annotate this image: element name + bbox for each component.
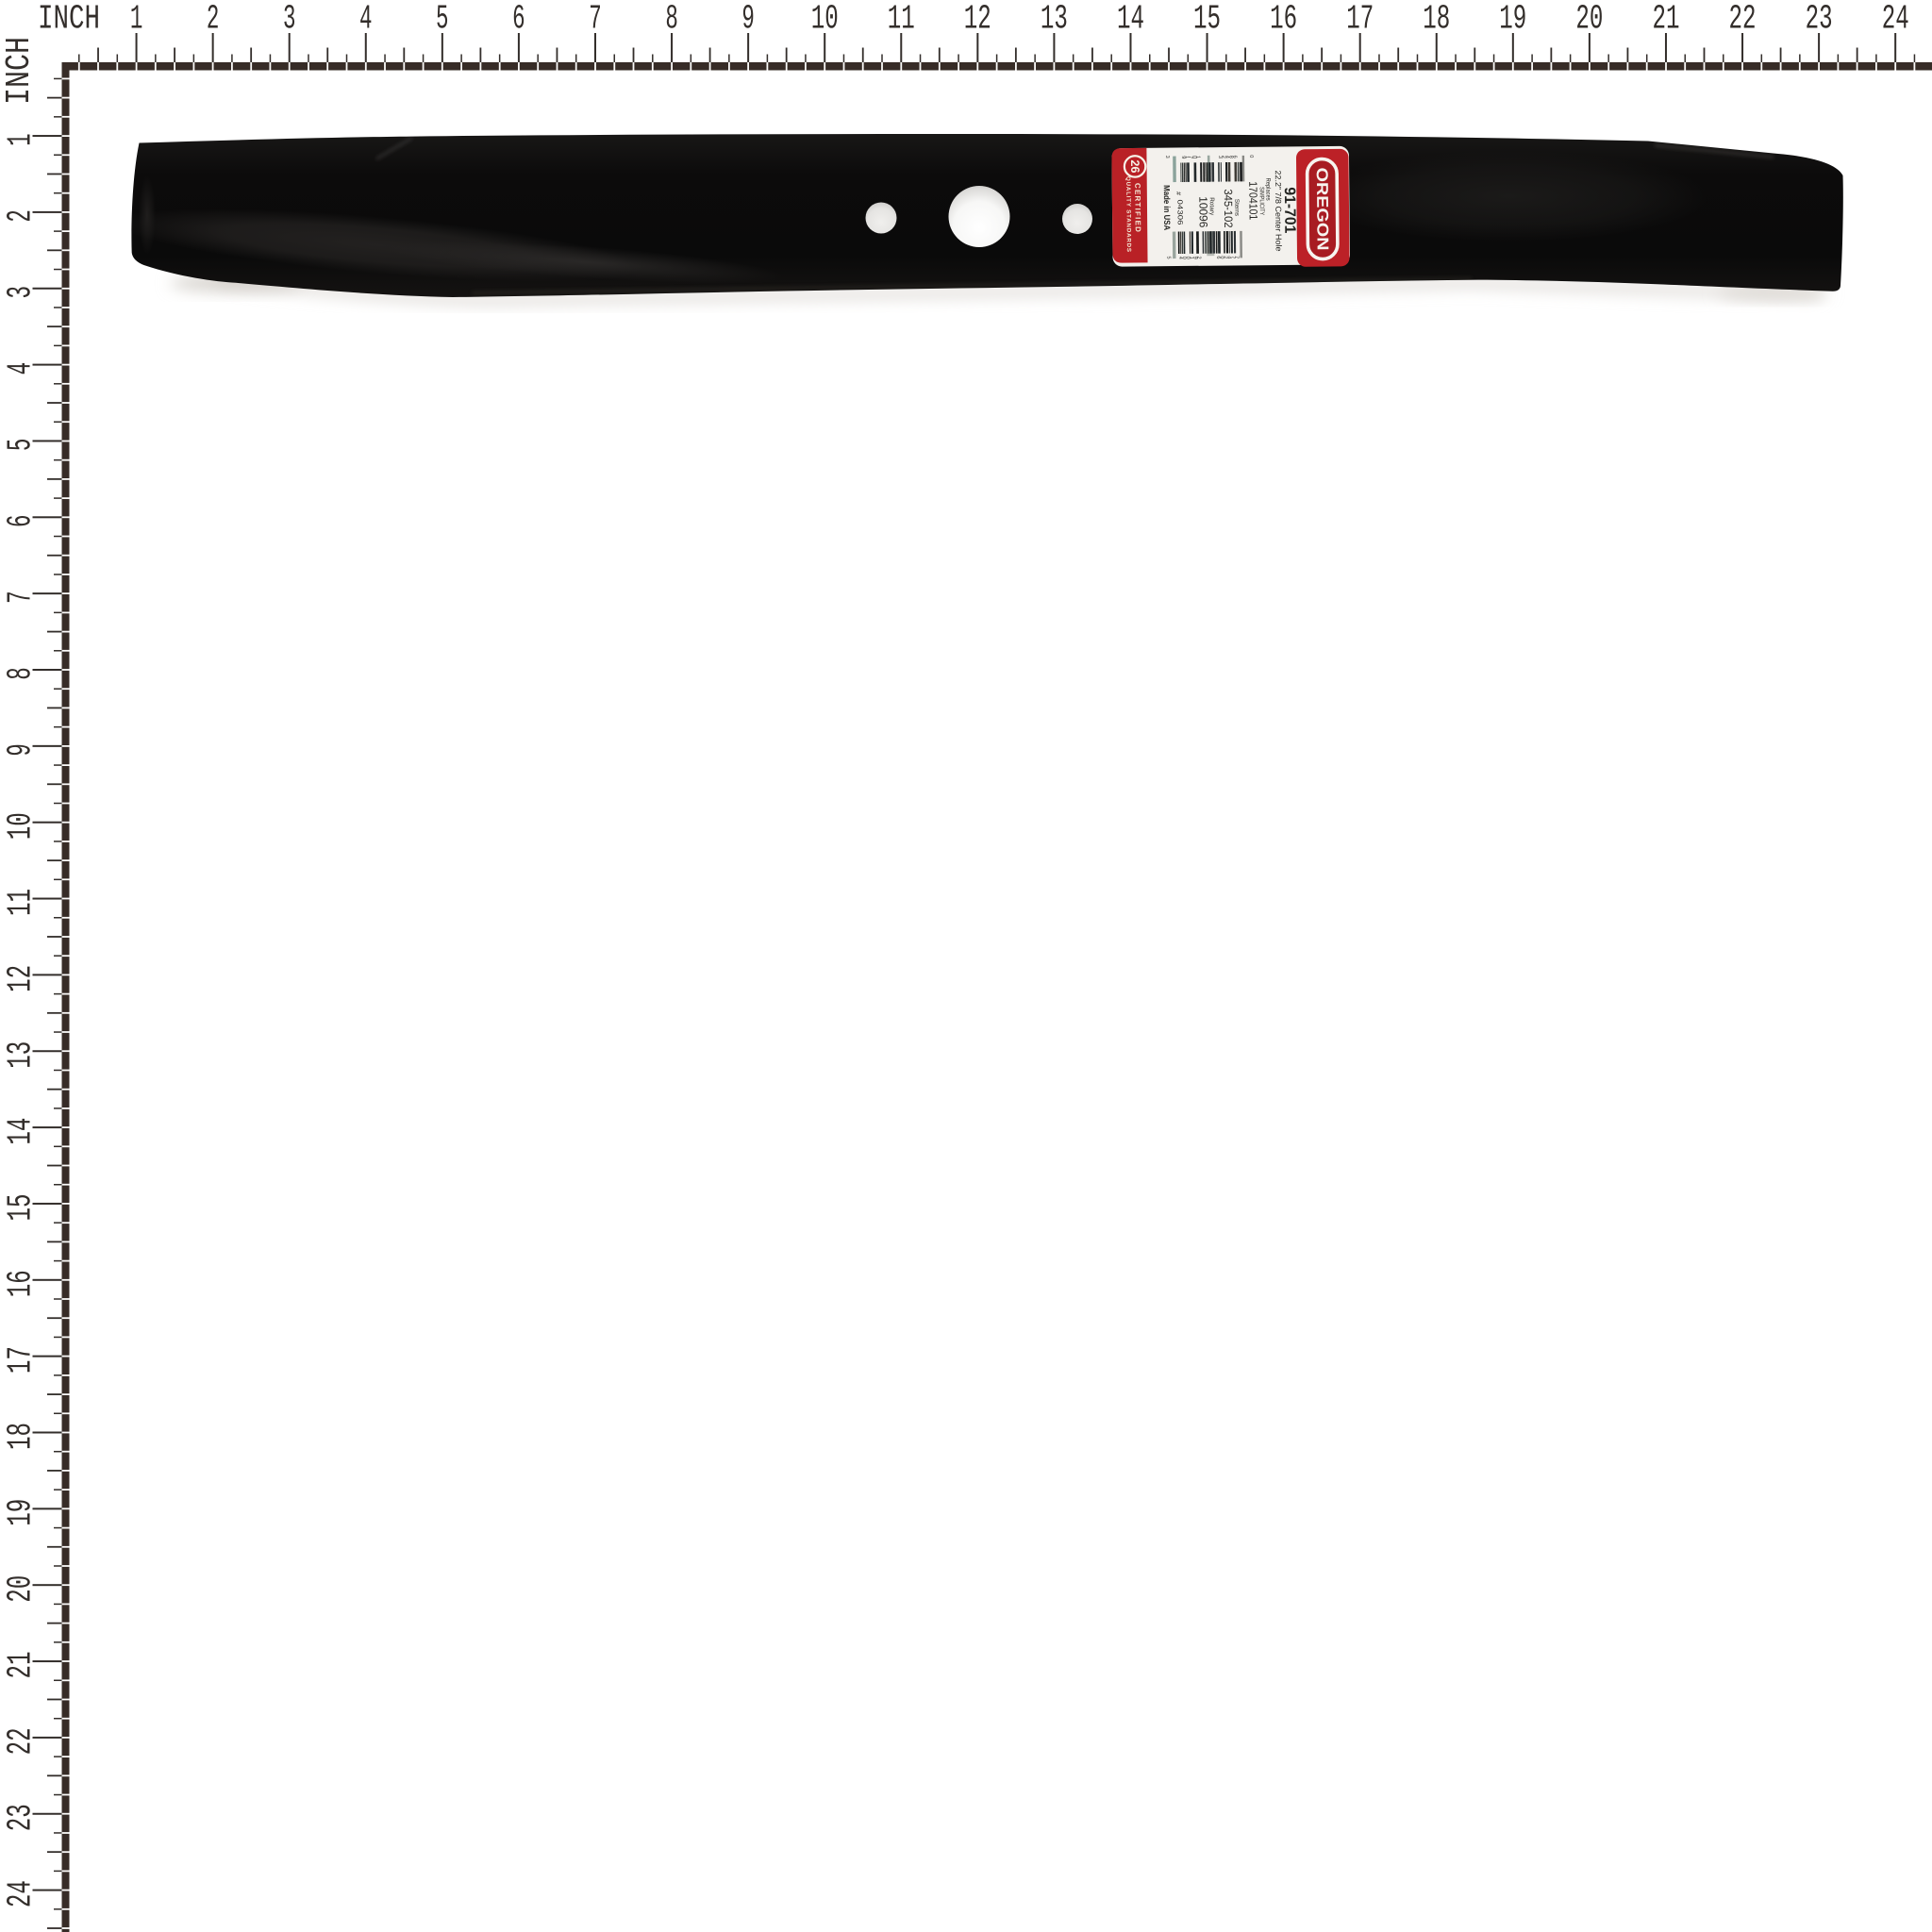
- svg-text:INCH: INCH: [38, 0, 100, 38]
- svg-text:13: 13: [2, 1041, 41, 1069]
- svg-text:7: 7: [2, 591, 41, 604]
- svg-text:CERTIFIED: CERTIFIED: [1133, 183, 1142, 232]
- svg-text:21: 21: [2, 1652, 41, 1679]
- svg-text:14: 14: [1117, 0, 1144, 38]
- svg-text:4: 4: [2, 362, 41, 375]
- svg-text:345-102: 345-102: [1222, 189, 1235, 227]
- svg-text:16: 16: [2, 1270, 41, 1297]
- svg-text:Made in USA: Made in USA: [1162, 185, 1172, 231]
- svg-text:15: 15: [2, 1194, 41, 1222]
- svg-text:5: 5: [2, 439, 41, 452]
- svg-text:14: 14: [2, 1118, 41, 1145]
- svg-text:7: 7: [1233, 256, 1239, 258]
- svg-text:16: 16: [1270, 0, 1297, 38]
- svg-text:04306: 04306: [1175, 199, 1184, 225]
- svg-text:1: 1: [1195, 156, 1201, 158]
- svg-text:SIMPLICITY: SIMPLICITY: [1258, 187, 1265, 216]
- svg-text:22: 22: [2, 1727, 41, 1755]
- svg-text:17: 17: [2, 1346, 41, 1374]
- svg-text:11: 11: [2, 889, 41, 916]
- svg-text:21: 21: [1653, 0, 1680, 38]
- svg-text:2: 2: [1195, 257, 1201, 259]
- svg-text:20: 20: [1575, 0, 1603, 38]
- svg-text:3: 3: [2, 286, 41, 299]
- svg-text:8: 8: [2, 667, 41, 680]
- svg-text:10: 10: [2, 812, 41, 840]
- svg-text:INCH: INCH: [0, 37, 39, 105]
- svg-text:11: 11: [888, 0, 915, 38]
- svg-text:5: 5: [436, 0, 449, 38]
- svg-text:QUALITY STANDARDS: QUALITY STANDARDS: [1124, 176, 1132, 252]
- svg-text:22: 22: [1729, 0, 1757, 38]
- svg-text:Sterns: Sterns: [1233, 199, 1240, 217]
- svg-text:6: 6: [512, 0, 525, 38]
- svg-text:12: 12: [964, 0, 991, 38]
- svg-text:19: 19: [1499, 0, 1526, 38]
- svg-text:5: 5: [1165, 257, 1171, 259]
- svg-text:10096: 10096: [1196, 196, 1209, 227]
- svg-text:2: 2: [207, 0, 220, 38]
- svg-text:1: 1: [130, 0, 143, 38]
- svg-text:4: 4: [359, 0, 373, 38]
- svg-text:19: 19: [2, 1499, 41, 1526]
- svg-text:Rotary: Rotary: [1208, 197, 1215, 216]
- svg-text:23: 23: [2, 1804, 41, 1831]
- svg-text:17: 17: [1346, 0, 1374, 38]
- svg-text:OREGON: OREGON: [1313, 167, 1332, 250]
- svg-text:0: 0: [1248, 155, 1254, 158]
- svg-text:7: 7: [589, 0, 602, 38]
- svg-text:12: 12: [2, 965, 41, 992]
- svg-text:10: 10: [811, 0, 839, 38]
- svg-text:1: 1: [2, 133, 41, 146]
- svg-text:20: 20: [2, 1575, 41, 1603]
- svg-text:24: 24: [2, 1880, 41, 1907]
- svg-text:6: 6: [1232, 156, 1238, 158]
- svg-text:23: 23: [1806, 0, 1833, 38]
- svg-text:18: 18: [1423, 0, 1450, 38]
- svg-text:13: 13: [1041, 0, 1068, 38]
- svg-text:2: 2: [2, 209, 41, 223]
- svg-text:18: 18: [2, 1423, 41, 1450]
- svg-text:24: 24: [1882, 0, 1909, 38]
- svg-text:9: 9: [741, 0, 755, 38]
- svg-text:26: 26: [1128, 159, 1141, 173]
- svg-text:8: 8: [665, 0, 678, 38]
- svg-text:91-701: 91-701: [1281, 187, 1298, 233]
- svg-text:6: 6: [2, 515, 41, 528]
- svg-text:15: 15: [1193, 0, 1221, 38]
- svg-text:#: #: [1174, 192, 1181, 195]
- svg-text:9: 9: [2, 743, 41, 757]
- svg-text:1704101: 1704101: [1246, 181, 1259, 220]
- svg-text:Replaces: Replaces: [1264, 178, 1271, 202]
- svg-text:3: 3: [283, 0, 296, 38]
- svg-text:3: 3: [1164, 156, 1170, 158]
